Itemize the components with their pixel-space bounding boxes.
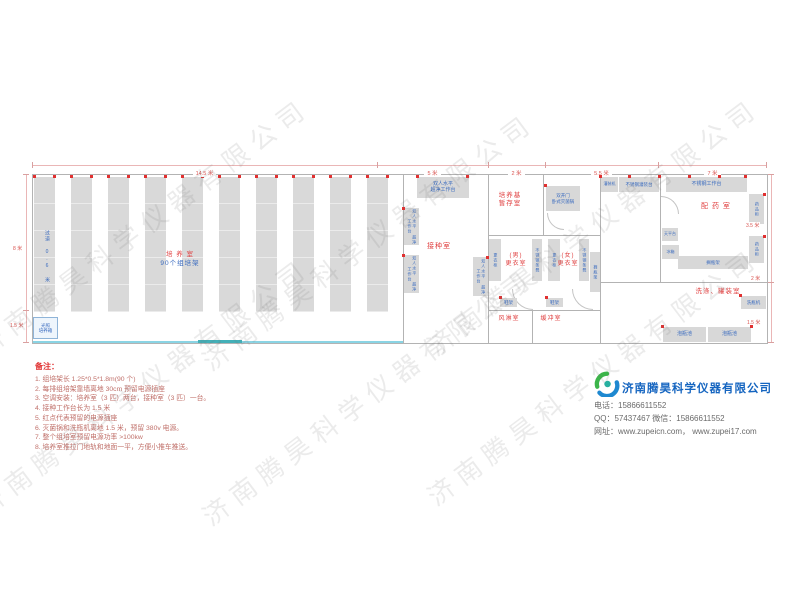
door-arc-pharmacy: [661, 196, 679, 214]
culture-rack: [71, 177, 92, 312]
womens-changing-room-label: (女) 更衣室: [557, 253, 579, 269]
outlet-dot: [402, 254, 405, 257]
refrigerator: 冰箱: [662, 245, 679, 259]
outlet-dot: [416, 175, 419, 178]
culture-room-name: 培 养 室: [166, 251, 194, 258]
dimension-line-right: [771, 174, 773, 343]
outlet-dot: [499, 296, 502, 299]
outlet-dot: [658, 175, 661, 178]
medicine-cabinet-2: 药品柜: [749, 236, 764, 263]
wall-fill-pharmacy: [660, 174, 661, 282]
ss-bench-women: 不锈钢条凳: [579, 239, 589, 281]
wall-changing-right-section: [600, 174, 601, 343]
wall-airshower-buffer: [532, 310, 533, 343]
clean-bench-left-1: 双人水平 超净工作台: [404, 208, 419, 245]
notes-title: 备注：: [35, 361, 210, 372]
pharmacy-room-label: 配 药 室: [688, 202, 744, 211]
shoe-rack-women: 鞋架: [546, 298, 563, 307]
outlet-dot: [739, 294, 742, 297]
note-item-5: 5. 红点代表预留的电源插座: [35, 414, 210, 424]
culture-rack: [293, 177, 314, 312]
outlet-dot: [628, 175, 631, 178]
notes-block: 备注： 1. 组培架长 1.25*0.5*1.8m(90 个) 2. 每排组培架…: [35, 361, 210, 453]
dimension-top-main: 14.5 米: [32, 165, 377, 184]
bottle-rack-pharmacy: 搁瓶架: [678, 256, 748, 269]
outlet-dot: [661, 325, 664, 328]
shoe-rack-men: 鞋架: [500, 298, 517, 307]
culture-room-label: 培 养 室 90个组培架: [105, 243, 255, 268]
floor-plan-page: { "watermark": "济南腾昊科学仪器有限公司", "colors":…: [0, 0, 800, 600]
outlet-dot: [718, 175, 721, 178]
culture-rack-count: 90个组培架: [160, 260, 199, 267]
outlet-dot: [763, 235, 766, 238]
dimension-top-pharmacy: 7 米: [658, 165, 767, 184]
wall-bottom: [32, 343, 767, 344]
outlet-dot: [599, 175, 602, 178]
dimension-right-top: 3.5 米: [745, 222, 760, 229]
outlet-dot: [486, 256, 489, 259]
note-item-8: 8. 培养室推拉门地轨和地面一平，方便小推车推送。: [35, 443, 210, 453]
culture-rack: [256, 177, 277, 312]
culture-rack: [367, 177, 388, 312]
sliding-door: [198, 340, 242, 343]
company-name: 济南腾昊科学仪器有限公司: [622, 380, 772, 396]
outlet-dot: [744, 175, 747, 178]
outlet-dot: [763, 193, 766, 196]
outlet-dot: [544, 184, 547, 187]
company-qq-wechat: QQ：57437467 微信：15866611552: [594, 413, 725, 424]
autoclave: 双开门 卧式灭菌锅: [546, 186, 580, 211]
dimension-right-mid: 2 米: [750, 275, 761, 282]
clean-bench-right: 双人水平 超净工作台: [473, 257, 488, 296]
inoculation-room-label: 接种室: [413, 242, 465, 251]
dimension-left-top: 8 米: [12, 245, 23, 252]
note-item-7: 7. 整个组培室预留电源功率 >100kw: [35, 433, 210, 443]
clean-bench-left-2: 双人水平 超净工作台: [404, 255, 419, 293]
dimension-top-storage: 2 米: [488, 165, 545, 184]
aisle-label: 过道 0.6 米: [44, 230, 51, 283]
soaking-pool-2: 泡瓶池: [708, 327, 751, 342]
company-phone: 电话：15866611552: [594, 400, 666, 411]
wall-changing-bottom: [488, 310, 600, 311]
note-item-4: 4. 接种工作台长为 1.5 米: [35, 404, 210, 414]
outlet-dot: [545, 296, 548, 299]
outlet-dot: [688, 175, 691, 178]
dimension-top-seed: 5 米: [377, 165, 488, 184]
wall-pharmacy-washing: [600, 282, 767, 283]
note-item-1: 1. 组培架长 1.25*0.5*1.8m(90 个): [35, 375, 210, 385]
dimension-line-left: [26, 174, 28, 343]
note-item-3: 3. 空调安装：培养室（3 匹）两台，接种室（3 匹）一台。: [35, 394, 210, 404]
company-logo-icon: [594, 371, 620, 397]
balance-table: 天平台: [662, 228, 678, 241]
note-item-6: 6. 灭菌锅和洗瓶机离地 1.5 米，预留 380v 电源。: [35, 424, 210, 434]
air-shower-label: 风淋室: [492, 316, 526, 324]
wall-right: [767, 174, 768, 344]
culture-rack: [330, 177, 351, 312]
medicine-cabinet-1: 药品柜: [749, 194, 764, 224]
soaking-pool-1: 泡瓶池: [663, 327, 706, 342]
locker-men: 更衣柜: [489, 239, 501, 281]
wall-changing-top: [488, 235, 600, 236]
bottle-shelf-changing: 搁瓶架: [590, 252, 600, 292]
outlet-dot: [402, 207, 405, 210]
washing-room-label: 洗涤、罐装室: [683, 288, 753, 296]
bottle-washer: 洗瓶机: [741, 296, 766, 309]
dimension-right-bottom: 1.5 米: [746, 319, 761, 326]
note-item-2: 2. 每排组培架靠墙离地 30cm 预留电源插座: [35, 385, 210, 395]
medium-storage-label: 培养基 暂存室: [487, 192, 533, 209]
door-arc-autoclave: [547, 213, 564, 230]
door-arc-buffer: [572, 289, 593, 310]
outlet-dot: [750, 325, 753, 328]
buffer-room-label: 缓冲室: [536, 316, 566, 324]
light-incubator: 光照 培养箱: [33, 317, 58, 339]
dimension-left-bottom: 1.5 米: [9, 322, 24, 329]
mens-changing-room-label: (男) 更衣室: [501, 253, 531, 269]
company-website: 网址：www.zupeicn.com， www.zupei17.com: [594, 426, 757, 437]
watermark-text: 济南腾昊科学仪器有限公司: [419, 88, 767, 363]
ss-bench-men: 不锈钢条凳: [532, 239, 542, 281]
outlet-dot: [466, 175, 469, 178]
